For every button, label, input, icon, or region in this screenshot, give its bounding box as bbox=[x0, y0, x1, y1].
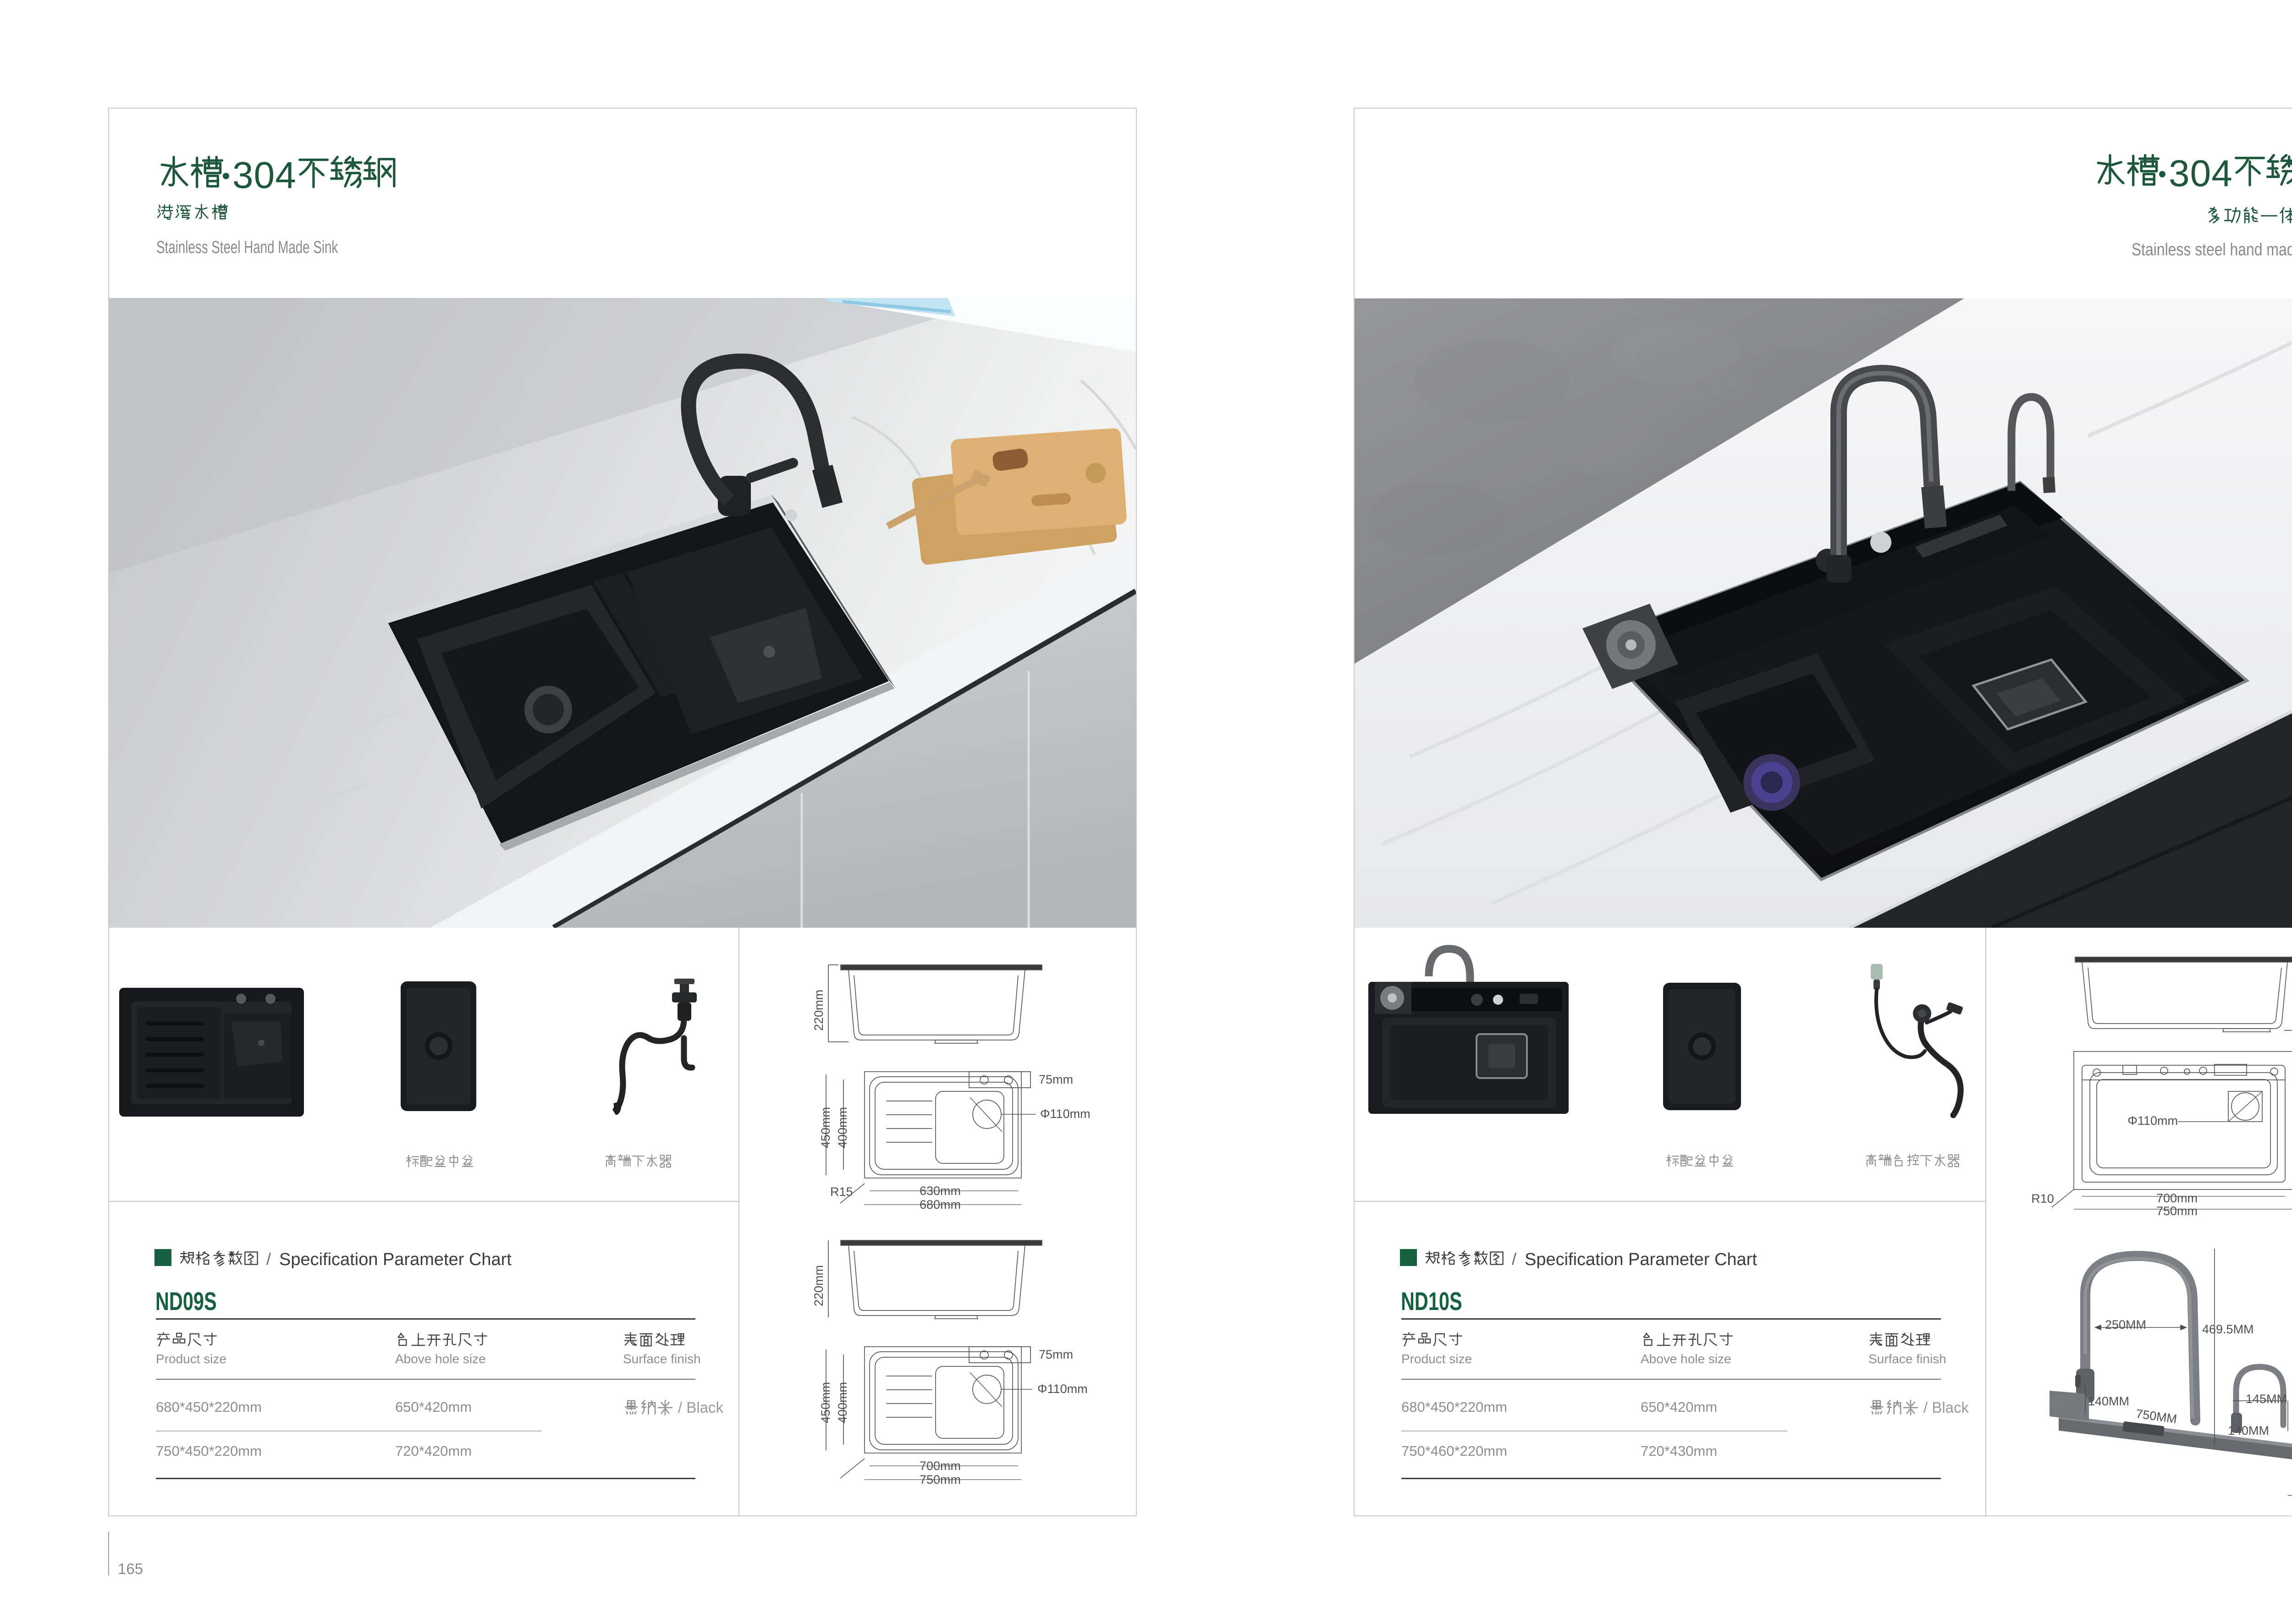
svg-text:469.5MM: 469.5MM bbox=[2202, 1322, 2254, 1336]
svg-text:220mm: 220mm bbox=[812, 1265, 826, 1306]
svg-text:Specification Parameter Chart: Specification Parameter Chart bbox=[279, 1250, 512, 1268]
svg-text:250MM: 250MM bbox=[2105, 1318, 2146, 1332]
svg-text:450mm: 450mm bbox=[819, 1382, 832, 1423]
svg-text:140MM: 140MM bbox=[2088, 1394, 2129, 1408]
svg-text:/: / bbox=[1512, 1250, 1516, 1268]
svg-text:220mm: 220mm bbox=[812, 990, 826, 1031]
svg-text:750MM: 750MM bbox=[2135, 1407, 2178, 1426]
svg-text:400mm: 400mm bbox=[836, 1107, 849, 1148]
svg-text:75mm: 75mm bbox=[1039, 1348, 1073, 1361]
svg-text:140MM: 140MM bbox=[2228, 1424, 2269, 1437]
svg-text:304: 304 bbox=[2169, 153, 2233, 190]
svg-text:630mm: 630mm bbox=[920, 1184, 961, 1198]
svg-text:/ Black: / Black bbox=[1923, 1399, 1969, 1416]
svg-text:/ Black: / Black bbox=[678, 1399, 724, 1416]
svg-text:Φ110mm: Φ110mm bbox=[1040, 1107, 1091, 1121]
svg-text:75mm: 75mm bbox=[1039, 1073, 1073, 1086]
svg-text:Φ110mm: Φ110mm bbox=[2127, 1114, 2178, 1128]
svg-text:/: / bbox=[266, 1250, 271, 1268]
svg-text:750mm: 750mm bbox=[920, 1473, 961, 1486]
svg-text:304: 304 bbox=[232, 154, 297, 192]
svg-text:145MM: 145MM bbox=[2246, 1392, 2287, 1406]
svg-text:Φ110mm: Φ110mm bbox=[1037, 1382, 1088, 1396]
svg-text:400mm: 400mm bbox=[836, 1382, 849, 1423]
svg-text:R15: R15 bbox=[830, 1185, 853, 1199]
svg-text:Specification Parameter Chart: Specification Parameter Chart bbox=[1525, 1250, 1757, 1268]
svg-text:R10: R10 bbox=[2031, 1192, 2054, 1206]
svg-text:450mm: 450mm bbox=[819, 1107, 832, 1148]
svg-text:700mm: 700mm bbox=[2156, 1191, 2198, 1205]
svg-text:700mm: 700mm bbox=[920, 1459, 961, 1473]
svg-text:680mm: 680mm bbox=[920, 1198, 961, 1211]
svg-text:750mm: 750mm bbox=[2156, 1204, 2198, 1218]
